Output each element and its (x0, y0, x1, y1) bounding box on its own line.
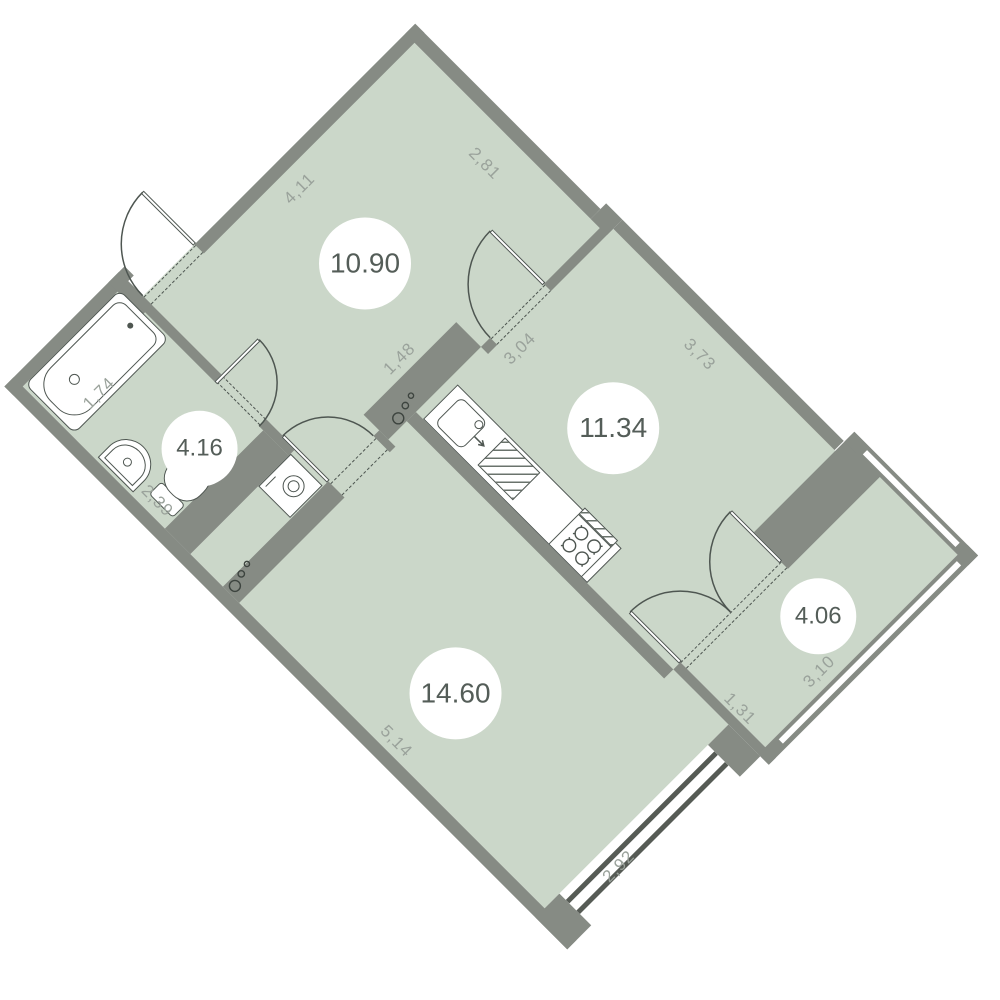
area-badge-living: 14.60 (409, 648, 501, 740)
power-sockets-kitchen (388, 392, 422, 426)
entrance-door-arc (91, 193, 195, 297)
kitchen-door-arc (437, 231, 544, 338)
floor-plan-canvas: 4,11 2,81 1,48 3,04 3,73 1,74 2,39 5,14 … (0, 0, 1000, 1000)
area-value-balcony: 4.06 (795, 602, 842, 630)
balcony-door-arc-right (681, 512, 781, 612)
area-badge-balcony: 4.06 (780, 578, 856, 654)
living-door-arc (283, 391, 374, 482)
area-badge-hallway: 10.90 (319, 218, 411, 310)
stove-burners (561, 525, 604, 568)
bathroom-door-arc (216, 340, 303, 427)
kitchen-sink-spout (473, 435, 486, 448)
apartment-floor-plan: 4,11 2,81 1,48 3,04 3,73 1,74 2,39 5,14 … (0, 0, 992, 972)
area-value-kitchen: 11.34 (579, 413, 647, 445)
power-sockets-living (224, 561, 257, 594)
area-value-hallway: 10.90 (330, 248, 400, 280)
balcony-door-arc-left (630, 562, 730, 662)
area-value-living: 14.60 (420, 678, 490, 710)
area-value-bathroom: 4.16 (177, 435, 224, 463)
